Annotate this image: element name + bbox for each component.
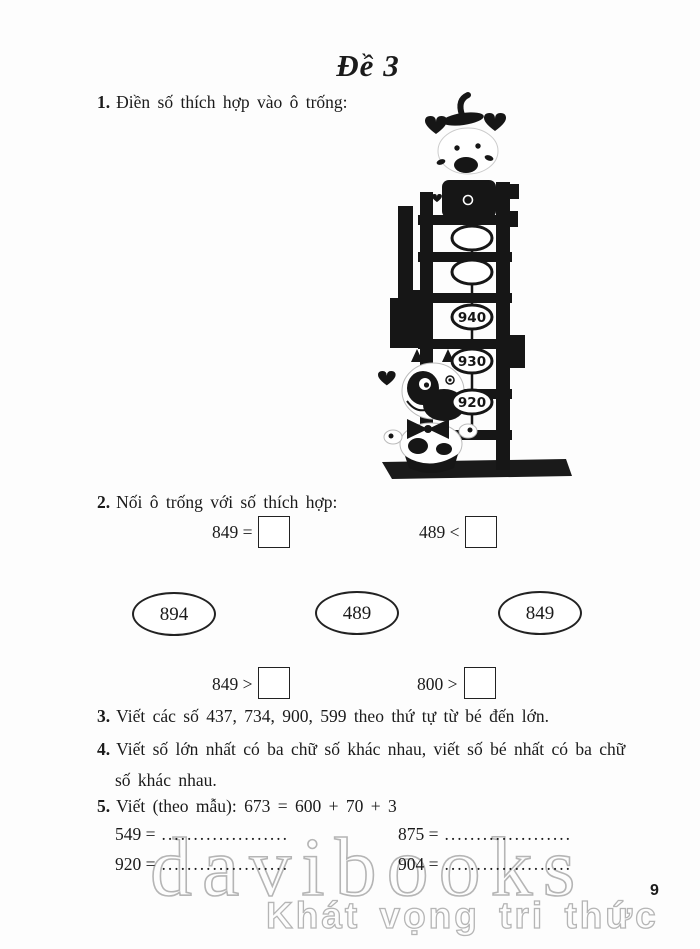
heart-ear-right xyxy=(484,113,506,131)
ladder-left-post xyxy=(390,206,421,348)
question-1-text: Điền số thích hợp vào ô trống: xyxy=(116,92,347,112)
expansion-549-blank[interactable]: .................... xyxy=(162,824,290,844)
question-2-number: 2. xyxy=(97,492,110,512)
question-5: 5.Viết (theo mẫu): 673 = 600 + 70 + 3 xyxy=(97,796,397,817)
match-bottom-right-label: 800 > xyxy=(417,674,458,695)
match-oval-489[interactable]: 489 xyxy=(315,591,399,635)
workbook-page: davibooks Khát vọng tri thức Đề 3 1.Điền… xyxy=(0,0,700,949)
match-top-right-label: 489 < xyxy=(419,522,460,543)
question-3-text: Viết các số 437, 734, 900, 599 theo thứ … xyxy=(116,706,549,726)
expansion-row-875: 875 =.................... xyxy=(398,824,572,845)
question-3-number: 3. xyxy=(97,706,110,726)
match-bottom-right-box[interactable] xyxy=(464,667,496,699)
question-4-text-line2: số khác nhau. xyxy=(115,770,217,790)
ladder-illustration: 940 930 920 xyxy=(378,88,630,483)
expansion-row-904: 904 =.................... xyxy=(398,854,572,875)
expansion-row-920: 920 =.................... xyxy=(115,854,289,875)
match-bottom-left-label: 849 > xyxy=(212,674,253,695)
question-1: 1.Điền số thích hợp vào ô trống: xyxy=(97,92,348,113)
match-oval-894[interactable]: 894 xyxy=(132,592,216,636)
expansion-549-label: 549 = xyxy=(115,824,156,844)
expansion-875-label: 875 = xyxy=(398,824,439,844)
question-2: 2.Nối ô trống với số thích hợp: xyxy=(97,492,337,513)
match-top-left-box[interactable] xyxy=(258,516,290,548)
ladder-label-920: 920 xyxy=(458,395,486,411)
expansion-920-label: 920 = xyxy=(115,854,156,874)
heart-ear-left xyxy=(425,116,447,134)
expansion-904-blank[interactable]: .................... xyxy=(445,854,573,874)
match-top-right-box[interactable] xyxy=(465,516,497,548)
ladder-label-940: 940 xyxy=(458,310,486,326)
page-title: Đề 3 xyxy=(38,48,698,84)
page-number: 9 xyxy=(650,882,659,900)
ladder-blank-oval[interactable] xyxy=(452,260,492,284)
question-4: 4.Viết số lớn nhất có ba chữ số khác nha… xyxy=(97,739,625,760)
expansion-875-blank[interactable]: .................... xyxy=(445,824,573,844)
question-3: 3.Viết các số 437, 734, 900, 599 theo th… xyxy=(97,706,549,727)
match-bottom-left-box[interactable] xyxy=(258,667,290,699)
expansion-904-label: 904 = xyxy=(398,854,439,874)
question-5-number: 5. xyxy=(97,796,110,816)
ladder-blank-oval[interactable] xyxy=(452,226,492,250)
question-1-number: 1. xyxy=(97,92,110,112)
question-4-line2: số khác nhau. xyxy=(115,770,217,791)
question-2-text: Nối ô trống với số thích hợp: xyxy=(116,492,337,512)
question-4-number: 4. xyxy=(97,739,110,759)
match-top-left-label: 849 = xyxy=(212,522,253,543)
question-4-text-line1: Viết số lớn nhất có ba chữ số khác nhau,… xyxy=(116,739,625,759)
match-oval-849[interactable]: 849 xyxy=(498,591,582,635)
expansion-920-blank[interactable]: .................... xyxy=(162,854,290,874)
question-5-text: Viết (theo mẫu): 673 = 600 + 70 + 3 xyxy=(116,796,397,816)
watermark-slogan: Khát vọng tri thức xyxy=(266,896,659,937)
pig-character xyxy=(425,95,506,225)
expansion-row-549: 549 =.................... xyxy=(115,824,289,845)
ladder-label-930: 930 xyxy=(458,354,486,370)
